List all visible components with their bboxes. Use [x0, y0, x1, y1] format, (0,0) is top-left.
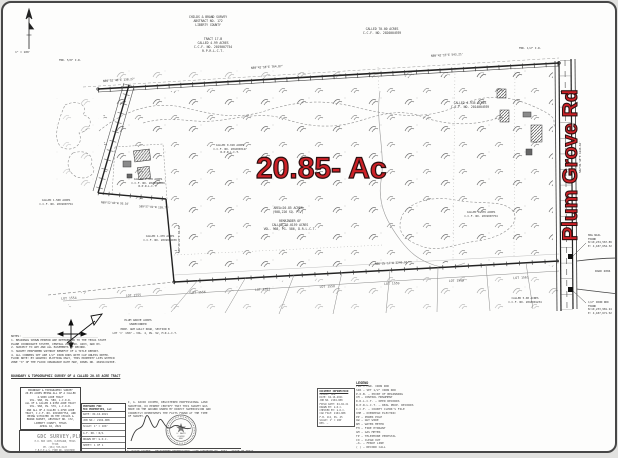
- document-info-body: CLIENT: MCD DATE: 04-16-2021 JOB NO. 210…: [320, 393, 353, 425]
- lot-label: LOT 1556: [190, 290, 206, 295]
- prepared-for: PREPARED FOR: MCD PROPERTIES, LLC: [82, 404, 125, 412]
- found-monument-label: FND. 5/8" I.R.: [59, 59, 99, 63]
- parcel-label: CALLED 4.935 ACRES C.C.F. NO. 2014004939: [427, 101, 513, 109]
- survey-header-label: CHILDS & BRAND SURVEY ABSTRACT NO. 172 L…: [153, 15, 263, 27]
- document-info-box: DOCUMENT INFORMATION CLIENT: MCD DATE: 0…: [317, 388, 355, 427]
- general-notes: NOTES: _________________________________…: [11, 335, 141, 358]
- flood-note: FLOOD NOTE: BY GRAPHIC PLOTTING ONLY, TH…: [11, 357, 141, 365]
- lot-label: LOT 1560: [449, 278, 465, 283]
- lot-label: LOT 1561: [513, 275, 529, 280]
- lot-label: LOT 1554: [61, 296, 77, 301]
- acreage-annotation: 20.85- Ac: [256, 152, 387, 186]
- firm-contact: P.O. BOX 1205, CLEVELAND, TEXAS 77328 PH…: [32, 441, 78, 452]
- legend-row: ( ) — RECORD CALL: [356, 446, 446, 450]
- legend-rows: FIR — FND. IRON RODSIR — SET 1/2" IRON R…: [356, 385, 446, 450]
- parcel-label: CALLED 5.00 ACRES C.C.F. NO. 2018001234: [495, 297, 555, 304]
- description-text: BOUNDARY & TOPOGRAPHIC SURVEY 20.85 ACRE…: [25, 389, 76, 428]
- plat-scan: 20.85- Ac Plum Grove Rd CHILDS & BRAND S…: [0, 0, 618, 458]
- side-road-label: ROAD 2004: [595, 270, 610, 274]
- monument-callout: MAG NAIL FOUND N:10,234,567.89 E: 4,187,…: [588, 234, 617, 249]
- bearing-label: S02°01'18"E 1246.64': [579, 141, 583, 173]
- remainder-label: REMAINDER OF CALLED 70.0159 ACRES VOL. 9…: [246, 219, 334, 231]
- parcel-label: CALLED 0.918 ACRES C.C.F. NO. 2016003127…: [199, 144, 261, 155]
- plat-paper: 20.85- Ac Plum Grove Rd CHILDS & BRAND S…: [1, 1, 617, 453]
- scale-note: 1" = 100': [15, 51, 30, 55]
- parcel-label: CALLED 1.478 ACRES C.C.F. NO. 2020004939…: [115, 178, 181, 189]
- survey-title-heading: BOUNDARY & TOPOGRAPHIC SURVEY OF A CALLE…: [11, 374, 141, 378]
- found-monument-label: FND. 1/2" I.R.: [519, 47, 559, 51]
- subdivision-label: PLUM GROVE ACRES UNRECORDED: [103, 319, 173, 327]
- certificate-text: I, G. DAVID COOPER, REGISTERED PROFESSIO…: [128, 401, 216, 419]
- surveyor-name-line: G. DAVID COOPER — REGISTERED PROFESSIONA…: [127, 450, 243, 453]
- project-field-row: SHEET: 1 OF 1: [82, 443, 125, 449]
- description-box: BOUNDARY & TOPOGRAPHIC SURVEY 20.85 ACRE…: [20, 387, 81, 430]
- firm-box: GDC SURVEY,PLLC P.O. BOX 1205, CLEVELAND…: [19, 430, 81, 453]
- parcel-label: CALLED 1.479 ACRES C.C.F. NO. 2019004939: [125, 235, 195, 242]
- project-fields-box: PREPARED FOR: MCD PROPERTIES, LLC DATE: …: [81, 403, 126, 453]
- lot-label: LOT 1555: [126, 293, 142, 298]
- parcel-label: CALLED 0.479 ACRES C.C.F. NO. 2019007754: [451, 211, 511, 218]
- legend: LEGEND FIR — FND. IRON RODSIR — SET 1/2"…: [356, 381, 446, 450]
- seal-center-text: G. DAVID COOPER 4967: [171, 433, 191, 441]
- lot-label: LOT 1558: [320, 284, 336, 289]
- parcel-label: CALLED 1.500 ACRES C.C.F. NO. 2019007754: [27, 199, 85, 206]
- lot-label: LOT 1557: [255, 287, 271, 292]
- area-figure-label: AREA=20.85 ACRES (908,226 SQ. FT.): [248, 206, 328, 214]
- monument-callout: 1/2" IRON ROD FOUND N:10,233,981.24 E: 4…: [588, 301, 617, 316]
- tract-block-label: TRACT 17-B CALLED 4.99 ACRES C.C.F. NO. …: [163, 37, 263, 54]
- called70-label: CALLED 70.00 ACRES C.C.F. NO. 2020004939: [339, 27, 425, 35]
- project-field-rows: DATE: 04-16-2021JOB NO.: 2104-088SCALE: …: [82, 412, 125, 449]
- lot-label: LOT 1559: [384, 281, 400, 286]
- north-arrow-icon: [26, 9, 34, 49]
